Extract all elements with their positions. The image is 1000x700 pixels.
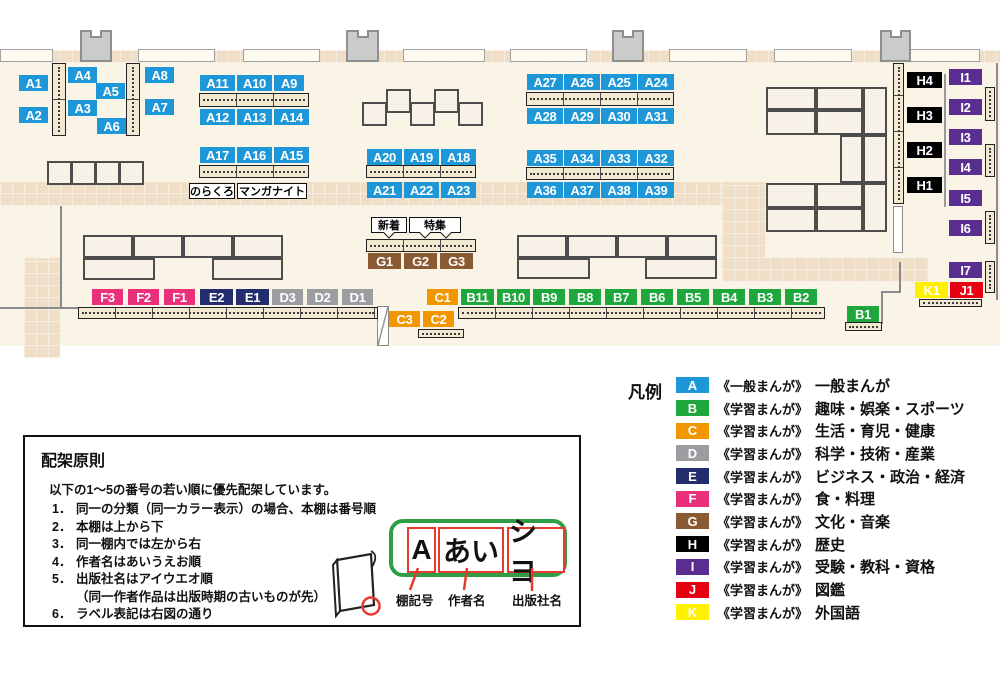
principles-item-text: 作者名はあいうえお順: [76, 554, 201, 572]
table-block: [863, 87, 887, 135]
shelf-label-chip: A38: [601, 182, 637, 198]
pillar: [346, 30, 379, 62]
annotation-tag: マンガナイト: [237, 183, 307, 199]
shelf-label-chip: K1: [915, 282, 948, 298]
window: [669, 49, 747, 62]
legend-row: C 《学習まんが》 生活・育児・健康: [676, 419, 965, 442]
right-carpet-band-horizontal: [722, 258, 928, 282]
shelf-label-chip: C1: [427, 289, 458, 305]
bookshelf: [919, 299, 982, 307]
pillar-notch: [90, 30, 102, 38]
shelf-label-chip: A34: [564, 150, 600, 166]
doorway: [893, 206, 903, 253]
table-block: [766, 208, 816, 232]
shelf-label-chip: A7: [145, 99, 174, 115]
shelf-label-chip: A28: [527, 108, 563, 124]
legend-series-label: 《学習まんが》: [717, 603, 808, 622]
wall-bookshelf: [985, 261, 995, 293]
legend-series-label: 《学習まんが》: [717, 444, 808, 463]
shelf-label-chip: A35: [527, 150, 563, 166]
table-block: [617, 235, 667, 258]
legend-color-chip: G: [676, 513, 709, 529]
principles-item: 2．本棚は上から下: [52, 519, 376, 537]
bookshelf: [78, 307, 378, 319]
legend-row: J 《学習まんが》 図鑑: [676, 578, 965, 601]
shelf-label-chip: G3: [440, 253, 473, 269]
table-block: [458, 102, 483, 126]
shelf-label-chip: A25: [601, 74, 637, 90]
legend-row: G 《学習まんが》 文化・音楽: [676, 510, 965, 533]
shelf-label-chip: B8: [569, 289, 601, 305]
wall-line: [881, 291, 883, 324]
legend-color-chip: E: [676, 468, 709, 484]
shelf-label-chip: A14: [274, 109, 309, 125]
shelf-label-chip: A3: [68, 100, 97, 116]
wall-line: [899, 262, 901, 292]
shelf-label-chip: A2: [19, 107, 48, 123]
shelf-label-chip: A8: [145, 67, 174, 83]
table-block: [119, 161, 144, 185]
window: [510, 49, 587, 62]
principles-item-text: 同一の分類（同一カラー表示）の場合、本棚は番号順: [76, 501, 376, 519]
table-block: [362, 102, 387, 126]
shelf-label-chip: I4: [949, 159, 982, 175]
shelf-label-chip: B10: [497, 289, 530, 305]
principles-item-number: 6．: [52, 606, 76, 624]
shelf-label-chip: B7: [605, 289, 637, 305]
shelf-label-chip: A16: [237, 147, 272, 163]
table-block: [645, 258, 717, 279]
pillar-notch: [890, 30, 902, 38]
table-block: [667, 235, 717, 258]
shelf-label-chip: A13: [237, 109, 272, 125]
window: [0, 49, 53, 62]
legend-series-label: 《学習まんが》: [717, 512, 808, 531]
shelf-label-chip: A36: [527, 182, 563, 198]
wall-bookshelf: [985, 87, 995, 121]
bookshelf: [199, 165, 309, 178]
window: [774, 49, 852, 62]
legend-series-label: 《一般まんが》: [717, 376, 808, 395]
shelf-label-chip: B4: [713, 289, 745, 305]
legend-color-chip: F: [676, 491, 709, 507]
table-block: [766, 87, 816, 110]
table-block: [863, 135, 887, 183]
shelf-label-chip: A22: [404, 182, 439, 198]
legend-row: D 《学習まんが》 科学・技術・産業: [676, 442, 965, 465]
principles-title: 配架原則: [41, 447, 105, 471]
bookshelf: [526, 92, 674, 106]
table-block: [386, 89, 411, 113]
shelf-label-chip: A10: [237, 75, 272, 91]
shelf-label-chip: A5: [96, 83, 125, 99]
legend-color-chip: K: [676, 604, 709, 620]
pillar-notch: [357, 30, 369, 38]
legend-title: 凡例: [628, 378, 662, 403]
shelf-label-chip: A21: [367, 182, 402, 198]
shelf-label-chip: A37: [564, 182, 600, 198]
wall-line: [0, 307, 80, 309]
principles-item-number: 5．: [52, 571, 76, 589]
legend-row: E 《学習まんが》 ビジネス・政治・経済: [676, 465, 965, 488]
shelving-principles-box: 配架原則 以下の1～5の番号の若い順に優先配架しています。 1．同一の分類（同一…: [23, 435, 581, 627]
legend-row: H 《学習まんが》 歴史: [676, 533, 965, 556]
shelf-label-chip: I5: [949, 190, 982, 206]
legend-category-label: 食・料理: [815, 488, 875, 509]
table-block: [766, 183, 816, 208]
legend-series-label: 《学習まんが》: [717, 421, 808, 440]
shelf-label-chip: B1: [847, 306, 879, 322]
shelf-label-chip: A33: [601, 150, 637, 166]
shelf-label-chip: B5: [677, 289, 709, 305]
principles-item-number: 4．: [52, 554, 76, 572]
book-illustration: [327, 545, 389, 619]
shelf-label-chip: C3: [389, 311, 420, 327]
shelf-label-chip: E2: [200, 289, 233, 305]
table-block: [410, 102, 435, 126]
table-block: [133, 235, 183, 258]
shelf-label-chip: H3: [907, 107, 942, 123]
table-block: [183, 235, 233, 258]
legend-category-label: 科学・技術・産業: [815, 443, 935, 464]
legend-rows: A 《一般まんが》 一般まんが B 《学習まんが》 趣味・娯楽・スポーツ C 《…: [676, 374, 965, 624]
window: [243, 49, 320, 62]
shelf-label-chip: A32: [638, 150, 674, 166]
principles-item-text: 出版社名はアイウエオ順: [76, 571, 213, 589]
legend-series-label: 《学習まんが》: [717, 489, 808, 508]
shelf-label-chip: J1: [950, 282, 983, 298]
annotation-tag: のらくろ: [189, 183, 235, 199]
wall-bookshelf: [985, 144, 995, 177]
legend-color-chip: I: [676, 559, 709, 575]
table-block: [233, 235, 283, 258]
table-block: [567, 235, 617, 258]
shelf-label-chip: A12: [200, 109, 235, 125]
shelf-label-chip: I3: [949, 129, 982, 145]
shelf-label-chip: B3: [749, 289, 781, 305]
shelf-label-chip: G1: [368, 253, 401, 269]
bookshelf: [458, 307, 825, 319]
principles-item-number: 2．: [52, 519, 76, 537]
shelf-label-chip: H2: [907, 142, 942, 158]
legend-row: A 《一般まんが》 一般まんが: [676, 374, 965, 397]
table-block: [83, 235, 133, 258]
bookshelf: [366, 165, 476, 178]
principles-item: 1．同一の分類（同一カラー表示）の場合、本棚は番号順: [52, 501, 376, 519]
shelf-zone-divider: [944, 74, 946, 207]
table-block: [816, 183, 863, 208]
shelf-label-chip: B6: [641, 289, 673, 305]
shelf-label-chip: A9: [274, 75, 304, 91]
principles-item-number: 3．: [52, 536, 76, 554]
shelf-label-chip: B2: [785, 289, 817, 305]
shelf-label-chip: I7: [949, 262, 982, 278]
doorway: [377, 306, 389, 346]
legend-series-label: 《学習まんが》: [717, 399, 808, 418]
pillar-notch: [622, 30, 634, 38]
shelf-label-chip: A1: [19, 75, 48, 91]
shelf-label-chip: A6: [97, 118, 126, 134]
shelf-label-chip: A23: [441, 182, 476, 198]
legend-category-label: 一般まんが: [815, 375, 890, 396]
bookshelf: [366, 239, 476, 252]
legend-series-label: 《学習まんが》: [717, 535, 808, 554]
shelf-label-chip: A17: [200, 147, 235, 163]
shelf-label-chip: F1: [164, 289, 195, 305]
principles-intro: 以下の1～5の番号の若い順に優先配架しています。: [49, 479, 336, 498]
shelf-label-chip: D3: [272, 289, 303, 305]
shelf-label-chip: I2: [949, 99, 982, 115]
table-block: [816, 110, 863, 135]
right-wall-line: [996, 63, 998, 300]
legend-color-chip: D: [676, 445, 709, 461]
pillar: [80, 30, 112, 62]
shelf-label-chip: A29: [564, 108, 600, 124]
shelf-label-chip: A4: [68, 67, 97, 83]
legend-category-label: 受験・教科・資格: [815, 556, 935, 577]
legend-category-label: 図鑑: [815, 579, 845, 600]
table-block: [47, 161, 72, 185]
bookshelf: [126, 63, 140, 136]
caption-publisher: 出版社名: [512, 590, 562, 609]
shelf-label-chip: B11: [461, 289, 494, 305]
legend-category-label: 生活・育児・健康: [815, 420, 935, 441]
legend-color-chip: C: [676, 423, 709, 439]
legend-row: B 《学習まんが》 趣味・娯楽・スポーツ: [676, 397, 965, 420]
table-block: [83, 258, 155, 280]
shelf-label-chip: A27: [527, 74, 563, 90]
table-block: [434, 89, 459, 113]
legend-series-label: 《学習まんが》: [717, 580, 808, 599]
shelf-label-chip: H1: [907, 177, 942, 193]
legend-category-label: ビジネス・政治・経済: [815, 466, 965, 487]
table-block: [95, 161, 120, 185]
shelf-label-chip: H4: [907, 72, 942, 88]
shelf-label-chip: A24: [638, 74, 674, 90]
shelf-label-chip: A20: [367, 149, 402, 165]
shelf-label-chip: A19: [404, 149, 439, 165]
principles-item-text: 本棚は上から下: [76, 519, 164, 537]
pillar: [612, 30, 644, 62]
legend-color-chip: J: [676, 582, 709, 598]
legend-category-label: 趣味・娯楽・スポーツ: [815, 398, 965, 419]
wall-bookshelf: [985, 211, 995, 244]
shelf-label-chip: F3: [92, 289, 123, 305]
caption-author: 作者名: [448, 590, 486, 609]
shelf-label-chip: B9: [533, 289, 565, 305]
window: [138, 49, 215, 62]
legend-series-label: 《学習まんが》: [717, 557, 808, 576]
shelf-label-chip: D1: [342, 289, 373, 305]
legend-color-chip: B: [676, 400, 709, 416]
shelf-label-chip: G2: [404, 253, 437, 269]
bookshelf: [199, 93, 309, 107]
principles-item-number: 1．: [52, 501, 76, 519]
wall-line: [60, 206, 62, 309]
legend-color-chip: H: [676, 536, 709, 552]
table-block: [212, 258, 283, 280]
annotation-tag: 新着: [371, 217, 407, 233]
legend-category-label: 文化・音楽: [815, 511, 890, 532]
legend-category-label: 歴史: [815, 534, 845, 555]
table-block: [863, 183, 887, 232]
table-block: [816, 208, 863, 232]
bookshelf: [845, 322, 882, 331]
wall-bookshelf: [893, 63, 904, 204]
shelf-label-chip: A15: [274, 147, 309, 163]
legend-category-label: 外国語: [815, 602, 860, 623]
shelf-label-chip: A39: [638, 182, 674, 198]
principles-item-text: 同一棚内では左から右: [76, 536, 201, 554]
shelf-label-chip: I1: [949, 69, 982, 85]
principles-item-text: ラベル表記は右図の通り: [76, 606, 214, 624]
legend-row: I 《学習まんが》 受験・教科・資格: [676, 556, 965, 579]
window: [403, 49, 485, 62]
shelf-label-chip: C2: [423, 311, 454, 327]
table-block: [840, 135, 863, 183]
legend-series-label: 《学習まんが》: [717, 467, 808, 486]
pillar: [880, 30, 911, 62]
table-block: [517, 258, 590, 279]
bookshelf: [418, 329, 464, 338]
table-block: [816, 87, 863, 110]
table-block: [766, 110, 816, 135]
bookshelf: [52, 63, 66, 136]
table-block: [71, 161, 96, 185]
caption-shelf-code: 棚記号: [396, 590, 434, 609]
shelf-label-chip: I6: [949, 220, 982, 236]
shelf-label-chip: D2: [307, 289, 338, 305]
legend-row: F 《学習まんが》 食・料理: [676, 487, 965, 510]
legend-color-chip: A: [676, 377, 709, 393]
shelf-label-chip: A18: [441, 149, 476, 165]
shelf-label-chip: F2: [128, 289, 159, 305]
shelf-label-chip: A31: [638, 108, 674, 124]
legend-row: K 《学習まんが》 外国語: [676, 601, 965, 624]
shelf-label-chip: E1: [236, 289, 269, 305]
window: [903, 49, 980, 62]
library-floor-map-poster: A1 A2 A4 A5 A3 A6 A8 A7 A11 A10 A9 A12 A…: [0, 0, 1000, 700]
bookshelf: [526, 167, 674, 180]
shelf-label-chip: A30: [601, 108, 637, 124]
annotation-tag: 特集: [409, 217, 461, 233]
shelf-label-chip: A11: [200, 75, 235, 91]
table-block: [517, 235, 567, 258]
shelf-label-chip: A26: [564, 74, 600, 90]
